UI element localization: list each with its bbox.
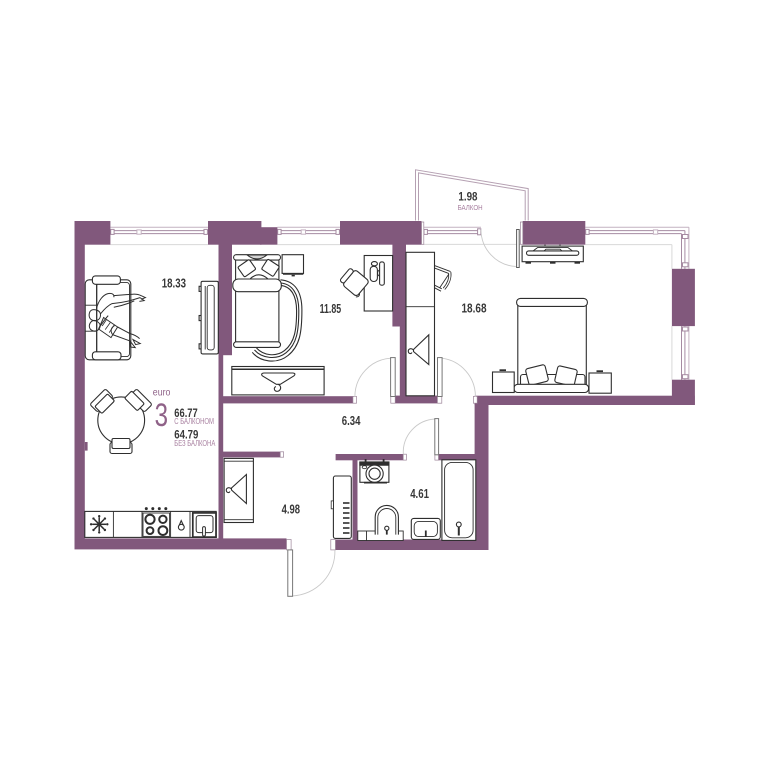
svg-text:18.68: 18.68 [462,302,487,316]
svg-text:1.98: 1.98 [458,190,477,204]
svg-text:БАЛКОН: БАЛКОН [458,204,483,212]
svg-text:С БАЛКОНОМ: С БАЛКОНОМ [174,417,214,426]
svg-text:3: 3 [155,397,168,433]
svg-text:11.85: 11.85 [320,302,342,316]
svg-text:4.61: 4.61 [410,487,429,501]
svg-text:6.34: 6.34 [342,414,361,428]
svg-text:18.33: 18.33 [162,276,186,290]
svg-text:4.98: 4.98 [282,502,300,516]
svg-text:БЕЗ БАЛКОНА: БЕЗ БАЛКОНА [174,439,215,448]
